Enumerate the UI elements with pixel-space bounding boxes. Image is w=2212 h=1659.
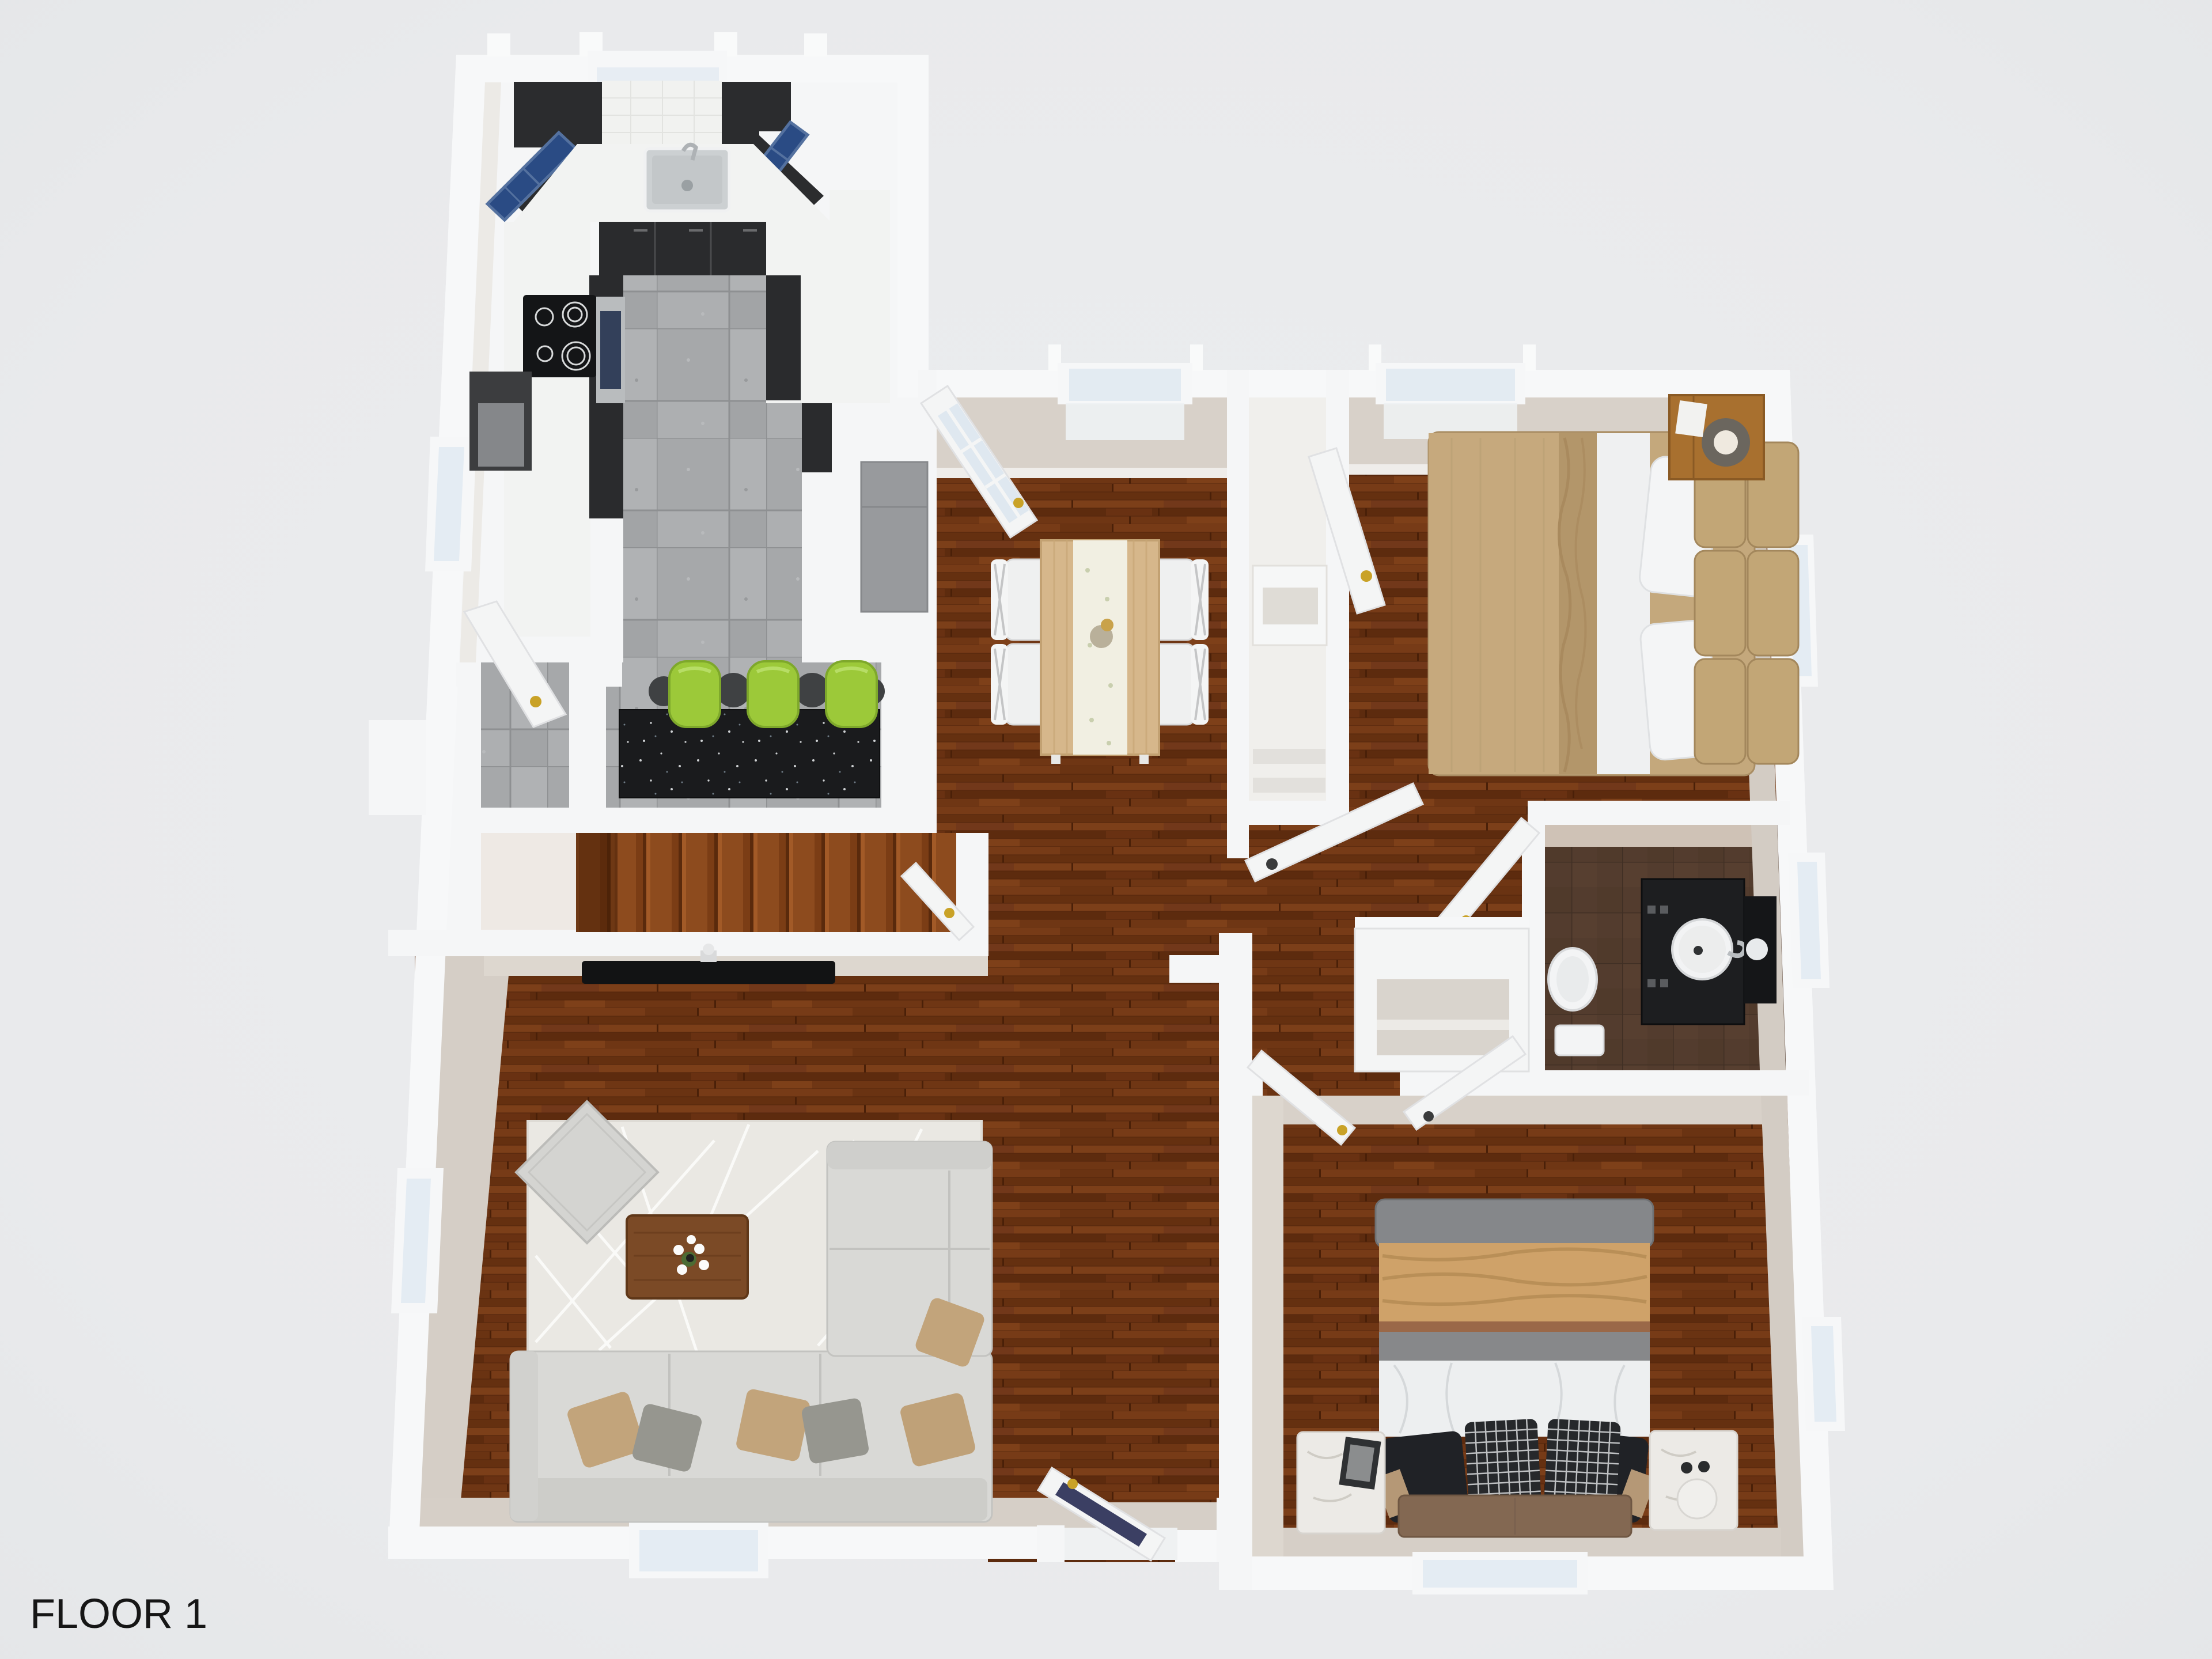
svg-text:FLOOR 1: FLOOR 1 [30, 1591, 207, 1637]
